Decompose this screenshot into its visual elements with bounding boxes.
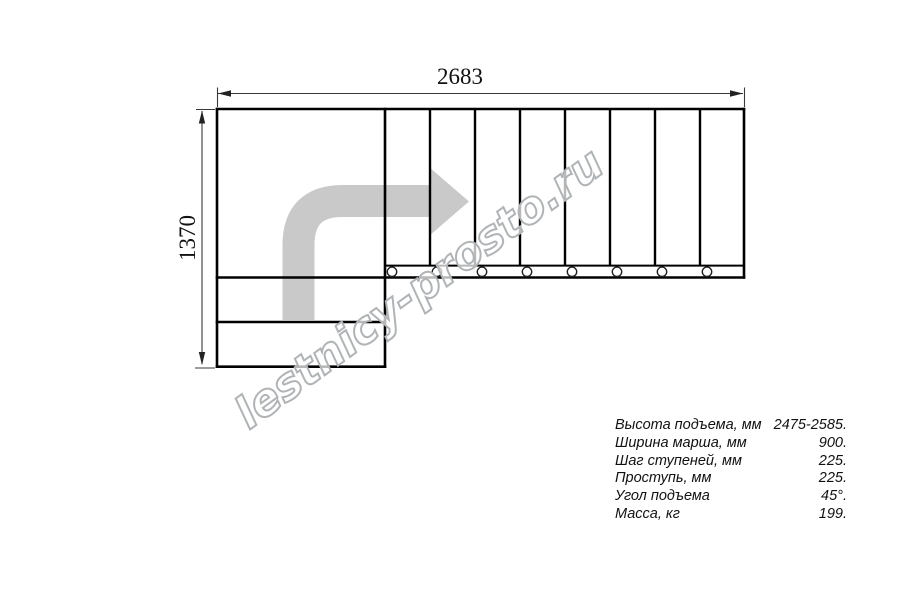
spec-value: 199. [819,506,847,524]
spec-value: 225. [819,470,847,488]
spec-row-mass: Масса, кг 199. [615,506,847,524]
spec-value: 225. [819,453,847,471]
spec-label: Масса, кг [615,506,680,524]
spec-label: Угол подъема [615,488,710,506]
spec-row-tread: Проступь, мм 225. [615,470,847,488]
spec-row-step-pitch: Шаг ступеней, мм 225. [615,453,847,471]
spec-row-height: Высота подъема, мм 2475-2585. [615,417,847,435]
spec-value: 900. [819,435,847,453]
spec-row-flight-width: Ширина марша, мм 900. [615,435,847,453]
staircase-drawing-page: 2683 1370 lestnicy-prosto.ru Высота подъ… [0,0,900,600]
specs-table: Высота подъема, мм 2475-2585. Ширина мар… [615,417,847,524]
spec-value: 2475-2585. [774,417,847,435]
dimension-height-label: 1370 [175,178,199,298]
dimension-width-label: 2683 [390,64,530,90]
spec-value: 45°. [821,488,847,506]
spec-label: Проступь, мм [615,470,711,488]
spec-label: Ширина марша, мм [615,435,747,453]
spec-label: Шаг ступеней, мм [615,453,742,471]
spec-row-angle: Угол подъема 45°. [615,488,847,506]
spec-label: Высота подъема, мм [615,417,762,435]
